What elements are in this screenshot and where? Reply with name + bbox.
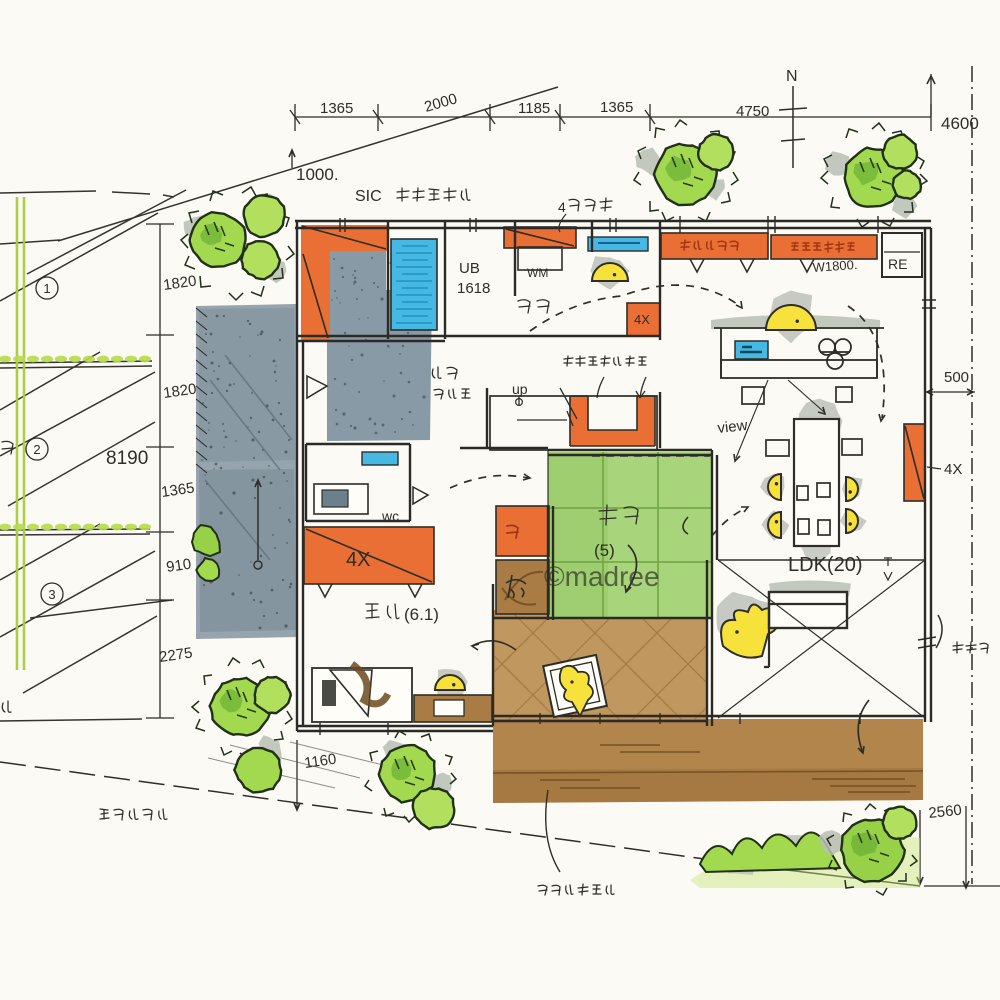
svg-text:RE: RE	[888, 256, 907, 272]
svg-text:(6.1): (6.1)	[404, 605, 439, 624]
svg-text:500: 500	[944, 369, 969, 386]
svg-text:2: 2	[33, 442, 40, 457]
svg-text:4X: 4X	[634, 312, 650, 327]
svg-text:1185: 1185	[518, 100, 550, 117]
svg-text:2560: 2560	[928, 802, 963, 822]
svg-text:1000.: 1000.	[296, 165, 339, 184]
svg-text:SIC: SIC	[355, 188, 382, 205]
svg-text:wc: wc	[381, 508, 399, 524]
svg-text:1365: 1365	[600, 99, 633, 116]
svg-text:4X: 4X	[944, 461, 962, 478]
svg-text:1365: 1365	[320, 100, 353, 117]
svg-text:W1800.: W1800.	[812, 257, 858, 275]
svg-text:LDK(20): LDK(20)	[788, 554, 862, 576]
svg-text:910: 910	[165, 556, 192, 576]
svg-text:4X: 4X	[346, 549, 370, 571]
svg-text:N: N	[786, 68, 798, 85]
svg-text:up: up	[512, 381, 528, 397]
svg-text:(5): (5)	[594, 541, 615, 560]
svg-text:4600: 4600	[941, 114, 979, 133]
svg-text:4: 4	[558, 199, 566, 215]
svg-text:1: 1	[43, 281, 50, 296]
svg-text:4750: 4750	[736, 103, 769, 120]
svg-text:WM: WM	[527, 266, 548, 280]
svg-text:8190: 8190	[106, 448, 148, 469]
svg-text:©madree: ©madree	[544, 561, 660, 592]
svg-text:view: view	[717, 417, 749, 437]
svg-text:3: 3	[48, 587, 55, 602]
svg-text:UB: UB	[459, 260, 480, 277]
svg-text:1618: 1618	[457, 280, 490, 297]
